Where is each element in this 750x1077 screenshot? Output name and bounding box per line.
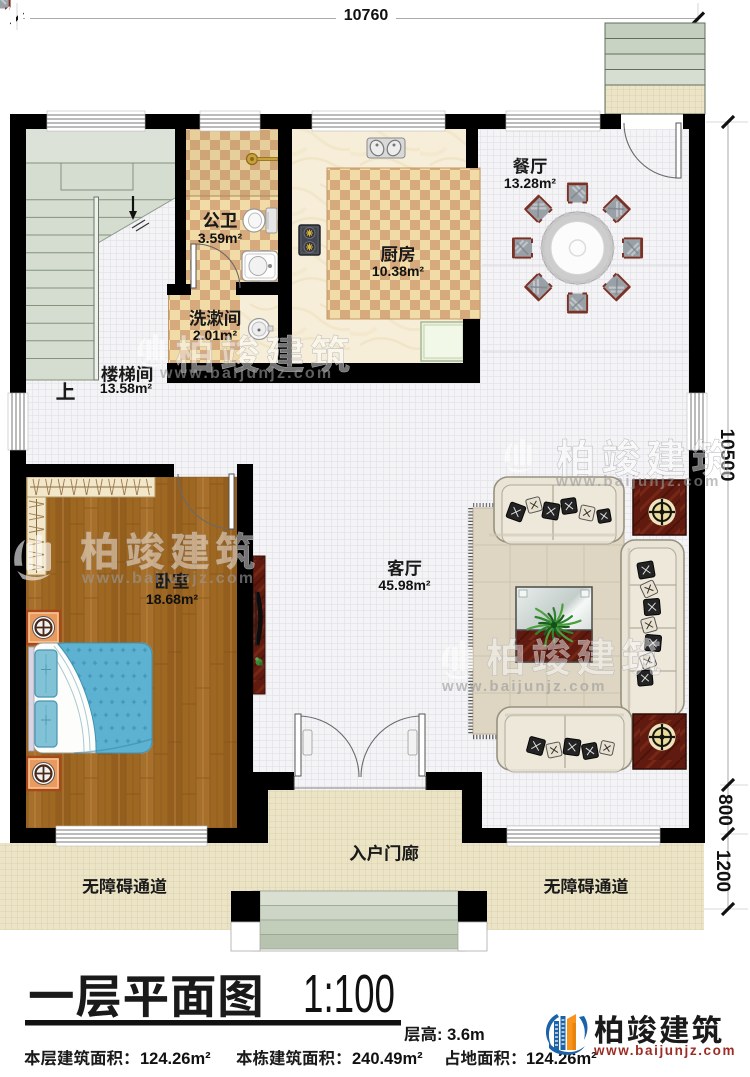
svg-text:13.28m²: 13.28m² [504,175,556,191]
svg-text:www.baijunjz.com: www.baijunjz.com [81,570,255,587]
svg-text:: 3.6m: : 3.6m [437,1026,485,1044]
svg-text:www.baijunjz.com: www.baijunjz.com [593,1043,736,1058]
svg-text:240.49m²: 240.49m² [352,1050,423,1068]
svg-text:1200: 1200 [712,850,733,892]
svg-text:10.38m²: 10.38m² [372,263,424,279]
svg-text:3.59m²: 3.59m² [198,230,243,246]
svg-text:10760: 10760 [344,7,389,24]
svg-text:124.26m²: 124.26m² [140,1050,211,1068]
svg-text:800: 800 [714,794,735,826]
svg-text:45.98m²: 45.98m² [378,577,430,593]
svg-text:www.baijunjz.com: www.baijunjz.com [441,678,607,695]
svg-text:13.58m²: 13.58m² [100,380,152,396]
svg-text:www.baijunjz.com: www.baijunjz.com [159,365,333,382]
svg-text:1:100: 1:100 [303,964,395,1024]
svg-text:www.baijunjz.com: www.baijunjz.com [555,473,721,490]
svg-text:18.68m²: 18.68m² [146,591,198,607]
